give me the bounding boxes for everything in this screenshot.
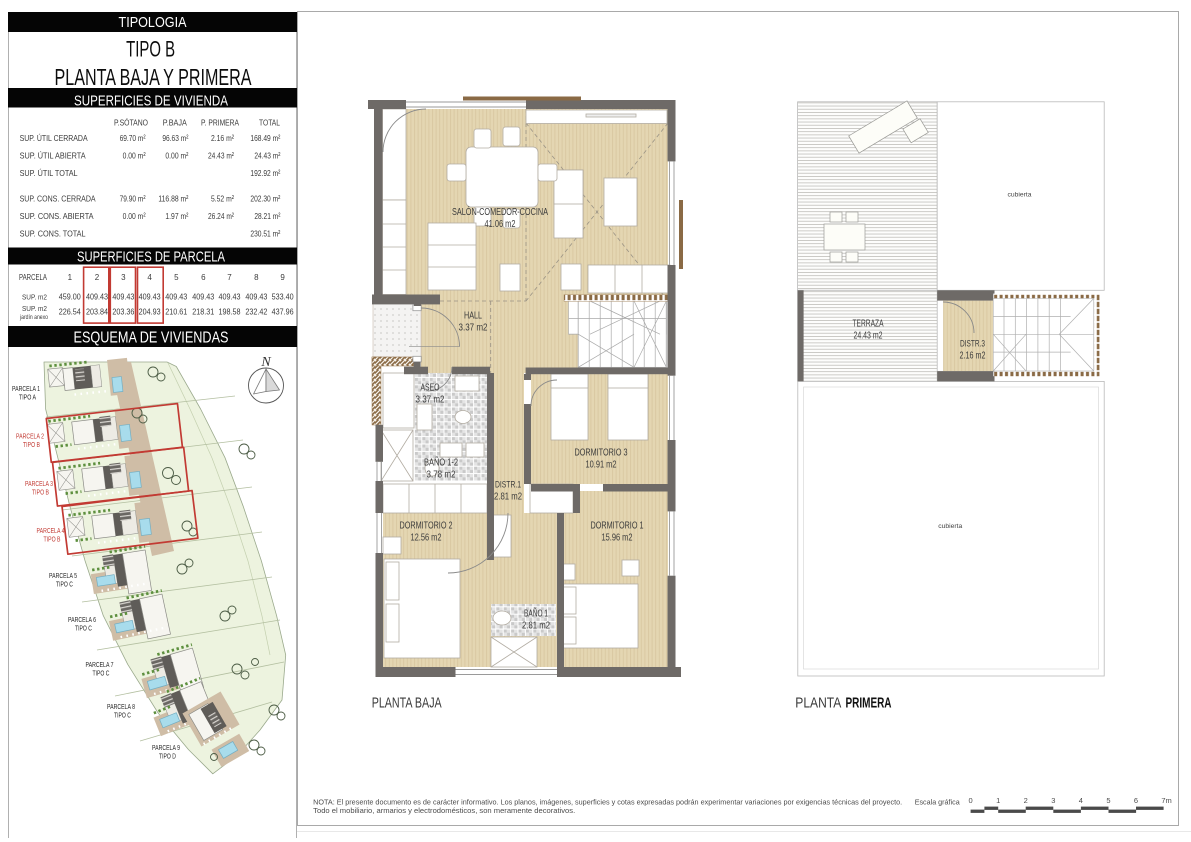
svg-text:2.81 m2: 2.81 m2 [522, 621, 550, 632]
svg-text:SUP. m2: SUP. m2 [22, 304, 47, 313]
svg-text:TIPO D: TIPO D [159, 753, 176, 760]
svg-text:TOTAL: TOTAL [259, 118, 280, 128]
svg-text:203.84: 203.84 [86, 308, 109, 317]
svg-text:BAÑO 1: BAÑO 1 [524, 607, 548, 620]
svg-text:cubierta: cubierta [938, 523, 962, 530]
svg-text:409.43: 409.43 [139, 293, 161, 302]
svg-text:459.00: 459.00 [59, 293, 82, 302]
svg-text:409.43: 409.43 [112, 293, 134, 302]
svg-text:TIPO C: TIPO C [114, 712, 131, 719]
svg-text:1: 1 [996, 796, 1000, 805]
svg-text:Escala gráfica: Escala gráfica [915, 798, 961, 807]
svg-text:PARCELA 4: PARCELA 4 [37, 528, 65, 535]
svg-text:2: 2 [1024, 796, 1028, 805]
svg-text:N: N [260, 355, 271, 370]
svg-text:TIPO B: TIPO B [32, 489, 49, 496]
svg-text:PARCELA 1: PARCELA 1 [12, 386, 40, 393]
svg-text:24.43 m²: 24.43 m² [208, 151, 234, 161]
svg-text:SALÓN-COMEDOR-COCINA: SALÓN-COMEDOR-COCINA [452, 205, 548, 218]
svg-text:41.06 m2: 41.06 m2 [485, 219, 516, 230]
svg-text:202.30 m²: 202.30 m² [250, 193, 280, 203]
svg-text:TIPO C: TIPO C [93, 670, 110, 677]
svg-text:PLANTA: PLANTA [795, 695, 841, 712]
svg-text:7: 7 [227, 273, 232, 282]
svg-text:Todo el mobiliario, armarios y: Todo el mobiliario, armarios y electrodo… [313, 806, 575, 815]
svg-text:SUP. ÚTIL CERRADA: SUP. ÚTIL CERRADA [20, 133, 88, 143]
svg-text:SUP. ÚTIL ABIERTA: SUP. ÚTIL ABIERTA [20, 151, 86, 161]
svg-text:SUP. m2: SUP. m2 [22, 293, 47, 302]
svg-text:TIPO C: TIPO C [75, 625, 92, 632]
svg-text:SUPERFICIES DE PARCELA: SUPERFICIES DE PARCELA [77, 248, 225, 265]
svg-text:28.21 m²: 28.21 m² [254, 211, 280, 221]
svg-text:DORMITORIO 2: DORMITORIO 2 [400, 521, 453, 532]
svg-text:PRIMERA: PRIMERA [846, 695, 892, 712]
svg-text:SUP. CONS. TOTAL: SUP. CONS. TOTAL [20, 228, 86, 238]
svg-text:P. PRIMERA: P. PRIMERA [201, 118, 239, 128]
svg-text:203.36: 203.36 [112, 308, 134, 317]
svg-text:69.70 m²: 69.70 m² [120, 133, 146, 143]
svg-text:SUPERFICIES DE VIVIENDA: SUPERFICIES DE VIVIENDA [74, 92, 228, 109]
svg-text:P.SÓTANO: P.SÓTANO [114, 118, 148, 128]
svg-text:198.58: 198.58 [219, 308, 241, 317]
svg-text:24.43 m2: 24.43 m2 [854, 331, 883, 342]
svg-text:3.37 m2: 3.37 m2 [416, 395, 445, 406]
svg-text:5: 5 [1106, 796, 1110, 805]
svg-text:HALL: HALL [464, 311, 482, 322]
svg-text:SUP. ÚTIL TOTAL: SUP. ÚTIL TOTAL [20, 168, 78, 178]
svg-text:PARCELA: PARCELA [19, 273, 47, 282]
svg-text:2: 2 [95, 273, 100, 282]
svg-text:1: 1 [68, 273, 73, 282]
svg-text:TIPO B: TIPO B [23, 442, 40, 449]
svg-text:PARCELA 7: PARCELA 7 [86, 662, 114, 669]
svg-text:232.42: 232.42 [245, 308, 267, 317]
svg-text:PARCELA 5: PARCELA 5 [49, 573, 77, 580]
svg-text:168.49 m²: 168.49 m² [250, 133, 280, 143]
svg-text:TIPO A: TIPO A [19, 394, 36, 401]
svg-text:DISTR.1: DISTR.1 [495, 480, 521, 490]
svg-text:6: 6 [1134, 796, 1138, 805]
svg-text:3.78 m2: 3.78 m2 [427, 470, 456, 481]
svg-text:TIPO C: TIPO C [56, 581, 73, 588]
svg-text:PARCELA 6: PARCELA 6 [68, 617, 96, 624]
svg-text:PARCELA 8: PARCELA 8 [107, 704, 135, 711]
svg-text:0.00 m²: 0.00 m² [123, 211, 146, 221]
svg-text:2.81 m2: 2.81 m2 [494, 492, 522, 503]
svg-text:P.BAJA: P.BAJA [163, 118, 187, 128]
svg-text:9: 9 [280, 273, 285, 282]
svg-text:TERRAZA: TERRAZA [853, 319, 884, 330]
svg-text:192.92 m²: 192.92 m² [250, 168, 280, 178]
svg-text:3: 3 [1051, 796, 1055, 805]
svg-text:230.51 m²: 230.51 m² [250, 228, 280, 238]
svg-text:409.43: 409.43 [192, 293, 214, 302]
svg-text:218.31: 218.31 [192, 308, 214, 317]
svg-text:4: 4 [147, 273, 152, 282]
svg-text:SUP. CONS. ABIERTA: SUP. CONS. ABIERTA [20, 211, 94, 221]
svg-text:409.43: 409.43 [86, 293, 108, 302]
svg-text:533.40: 533.40 [272, 293, 295, 302]
svg-text:cubierta: cubierta [1008, 192, 1032, 199]
svg-text:4: 4 [1079, 796, 1083, 805]
svg-text:PARCELA 3: PARCELA 3 [25, 481, 53, 488]
svg-text:24.43 m²: 24.43 m² [254, 151, 280, 161]
svg-text:DISTR.3: DISTR.3 [960, 339, 985, 349]
svg-text:6: 6 [201, 273, 206, 282]
svg-text:ESQUEMA DE VIVIENDAS: ESQUEMA DE VIVIENDAS [74, 330, 229, 347]
svg-text:SUP. CONS. CERRADA: SUP. CONS. CERRADA [20, 193, 96, 203]
svg-text:210.61: 210.61 [165, 308, 187, 317]
svg-text:BAÑO 1-2: BAÑO 1-2 [424, 456, 458, 469]
svg-text:2.16 m²: 2.16 m² [211, 133, 234, 143]
svg-text:PARCELA 2: PARCELA 2 [16, 434, 44, 441]
svg-text:10.91 m2: 10.91 m2 [586, 460, 617, 471]
svg-text:3.37 m2: 3.37 m2 [459, 323, 488, 334]
svg-text:96.63 m²: 96.63 m² [162, 133, 188, 143]
svg-text:12.56 m2: 12.56 m2 [411, 533, 442, 544]
svg-text:409.43: 409.43 [219, 293, 241, 302]
svg-text:0.00 m²: 0.00 m² [123, 151, 146, 161]
svg-text:2.16 m2: 2.16 m2 [960, 351, 986, 362]
svg-text:5: 5 [174, 273, 179, 282]
svg-text:8: 8 [254, 273, 259, 282]
svg-text:7m: 7m [1161, 796, 1171, 805]
svg-text:PARCELA 9: PARCELA 9 [152, 745, 180, 752]
svg-text:TIPOLOGIA: TIPOLOGIA [119, 14, 187, 31]
svg-text:204.93: 204.93 [139, 308, 161, 317]
svg-text:PLANTA BAJA Y PRIMERA: PLANTA BAJA Y PRIMERA [55, 64, 252, 90]
svg-text:3: 3 [121, 273, 126, 282]
svg-text:226.54: 226.54 [59, 308, 82, 317]
svg-text:409.43: 409.43 [165, 293, 187, 302]
svg-text:5.52 m²: 5.52 m² [211, 193, 234, 203]
svg-text:409.43: 409.43 [245, 293, 267, 302]
svg-text:TIPO B: TIPO B [44, 536, 61, 543]
svg-text:0.00 m²: 0.00 m² [165, 151, 188, 161]
svg-text:116.88 m²: 116.88 m² [158, 193, 188, 203]
svg-text:PLANTA BAJA: PLANTA BAJA [372, 695, 442, 712]
svg-text:15.96 m2: 15.96 m2 [602, 533, 633, 544]
svg-text:jardín anexo: jardín anexo [19, 314, 48, 321]
svg-text:79.90 m²: 79.90 m² [120, 193, 146, 203]
svg-text:TIPO B: TIPO B [126, 37, 175, 62]
svg-text:DORMITORIO 1: DORMITORIO 1 [591, 521, 644, 532]
svg-text:1.97 m²: 1.97 m² [165, 211, 188, 221]
svg-text:26.24 m²: 26.24 m² [208, 211, 234, 221]
svg-text:0: 0 [969, 796, 973, 805]
svg-text:DORMITORIO 3: DORMITORIO 3 [575, 448, 628, 459]
svg-text:ASEO: ASEO [421, 383, 440, 394]
svg-text:437.96: 437.96 [272, 308, 294, 317]
